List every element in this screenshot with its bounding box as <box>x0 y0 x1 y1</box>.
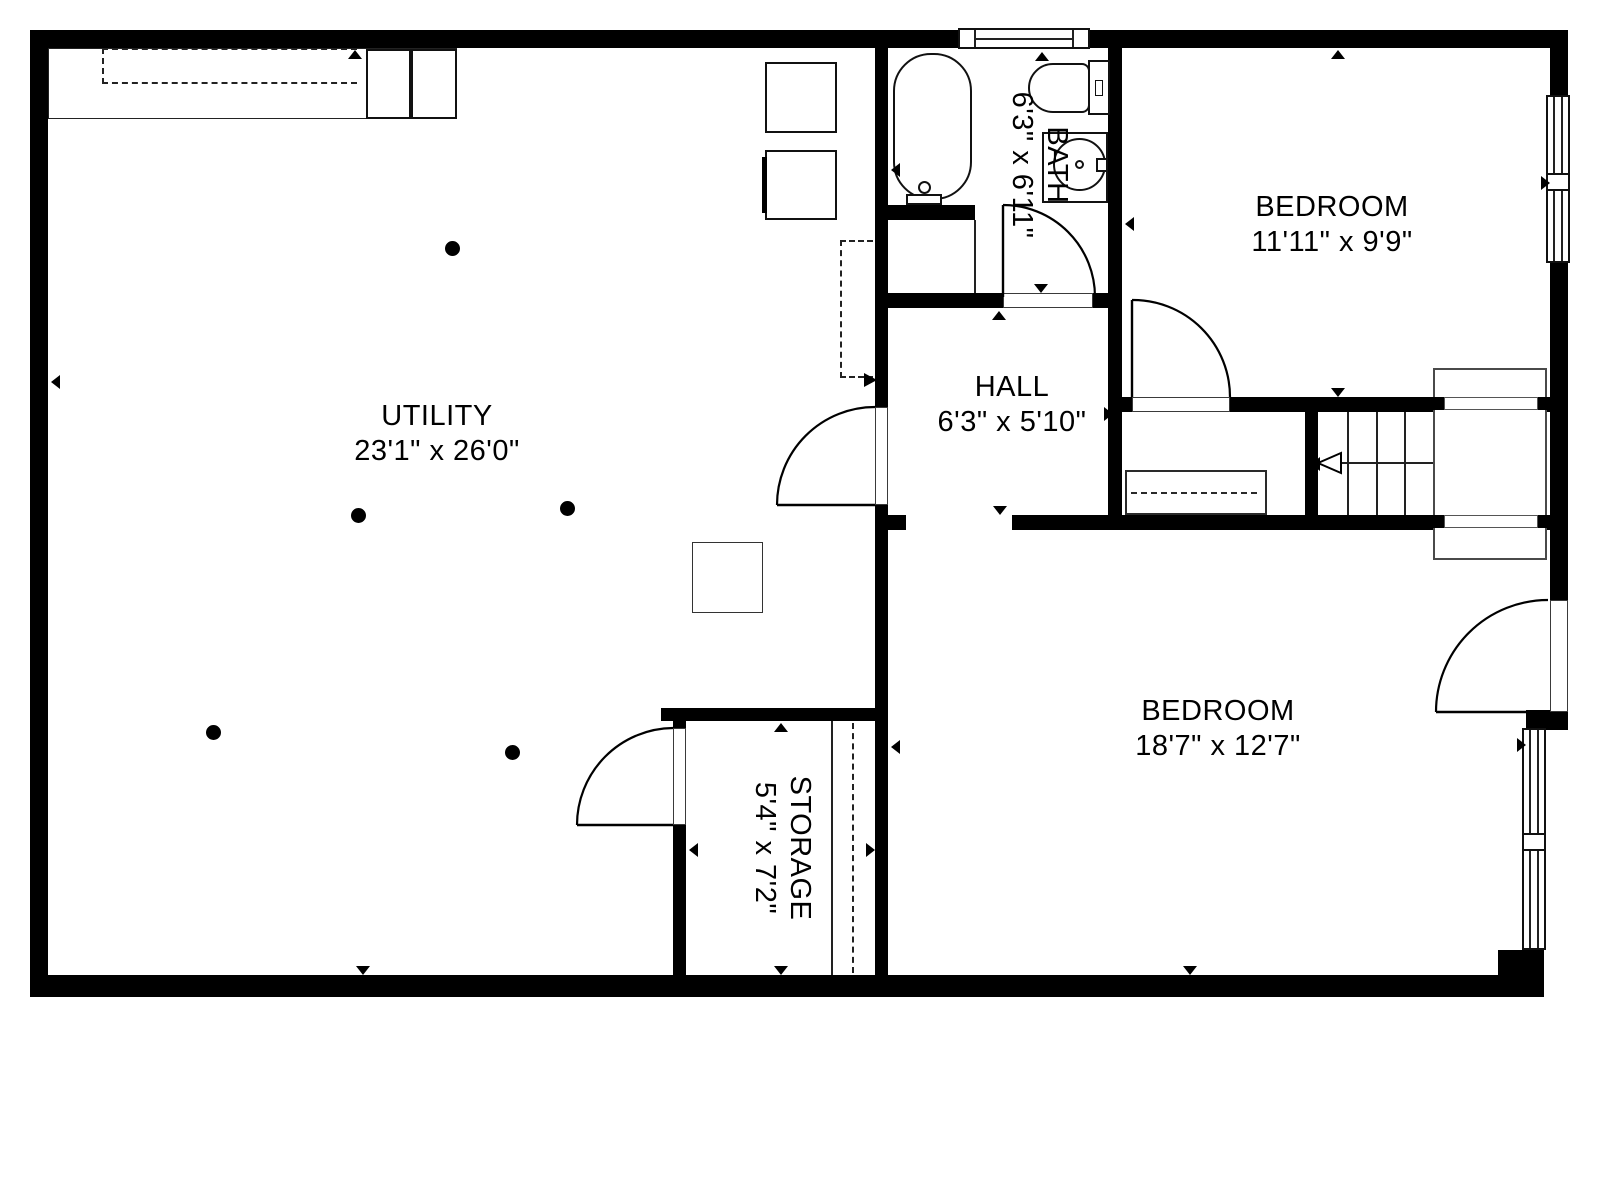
stair-direction-arrowhead <box>1318 453 1341 473</box>
tick-marker <box>1308 457 1320 471</box>
tick-marker <box>1541 176 1553 190</box>
room-dimensions: 23'1" x 26'0" <box>287 434 587 469</box>
tick-marker <box>993 506 1007 518</box>
door-swing-arc <box>1436 600 1548 712</box>
tick-marker <box>356 966 370 978</box>
tick-marker <box>992 308 1006 320</box>
room-dimensions: 5'4" x 7'2" <box>747 738 782 958</box>
tick-marker <box>866 843 878 857</box>
door-swings-layer <box>0 0 1600 1200</box>
room-dimensions: 6'3" x 5'10" <box>862 405 1162 440</box>
room-name: BATH <box>1039 55 1074 275</box>
tick-marker <box>686 843 698 857</box>
door-swing-arc <box>577 728 673 825</box>
room-dimensions: 6'3" x 6'11" <box>1004 55 1039 275</box>
floor-plan: UTILITY 23'1" x 26'0" HALL 6'3" x 5'10" … <box>0 0 1600 1200</box>
tick-marker <box>348 47 362 59</box>
tick-marker <box>48 375 60 389</box>
room-label-hall: HALL 6'3" x 5'10" <box>862 370 1162 440</box>
room-name: BEDROOM <box>1182 190 1482 225</box>
tick-marker <box>1331 388 1345 400</box>
tick-marker <box>1034 284 1048 296</box>
tick-marker <box>888 163 900 177</box>
room-label-bedroom1: BEDROOM 11'11" x 9'9" <box>1182 190 1482 260</box>
tick-marker <box>888 740 900 754</box>
room-dimensions: 11'11" x 9'9" <box>1182 225 1482 260</box>
tick-marker <box>1331 47 1345 59</box>
tick-marker <box>1517 738 1529 752</box>
tick-marker <box>1183 966 1197 978</box>
room-dimensions: 18'7" x 12'7" <box>1068 729 1368 764</box>
room-label-utility: UTILITY 23'1" x 26'0" <box>287 399 587 469</box>
room-label-bath: BATH 6'3" x 6'11" <box>1004 55 1074 275</box>
door-swing-arc <box>777 407 875 505</box>
room-name: STORAGE <box>782 738 817 958</box>
room-name: UTILITY <box>287 399 587 434</box>
room-label-bedroom2: BEDROOM 18'7" x 12'7" <box>1068 694 1368 764</box>
tick-marker <box>1122 217 1134 231</box>
room-label-storage: STORAGE 5'4" x 7'2" <box>747 738 817 958</box>
room-name: BEDROOM <box>1068 694 1368 729</box>
tick-marker <box>774 966 788 978</box>
room-name: HALL <box>862 370 1162 405</box>
tick-marker <box>774 720 788 732</box>
